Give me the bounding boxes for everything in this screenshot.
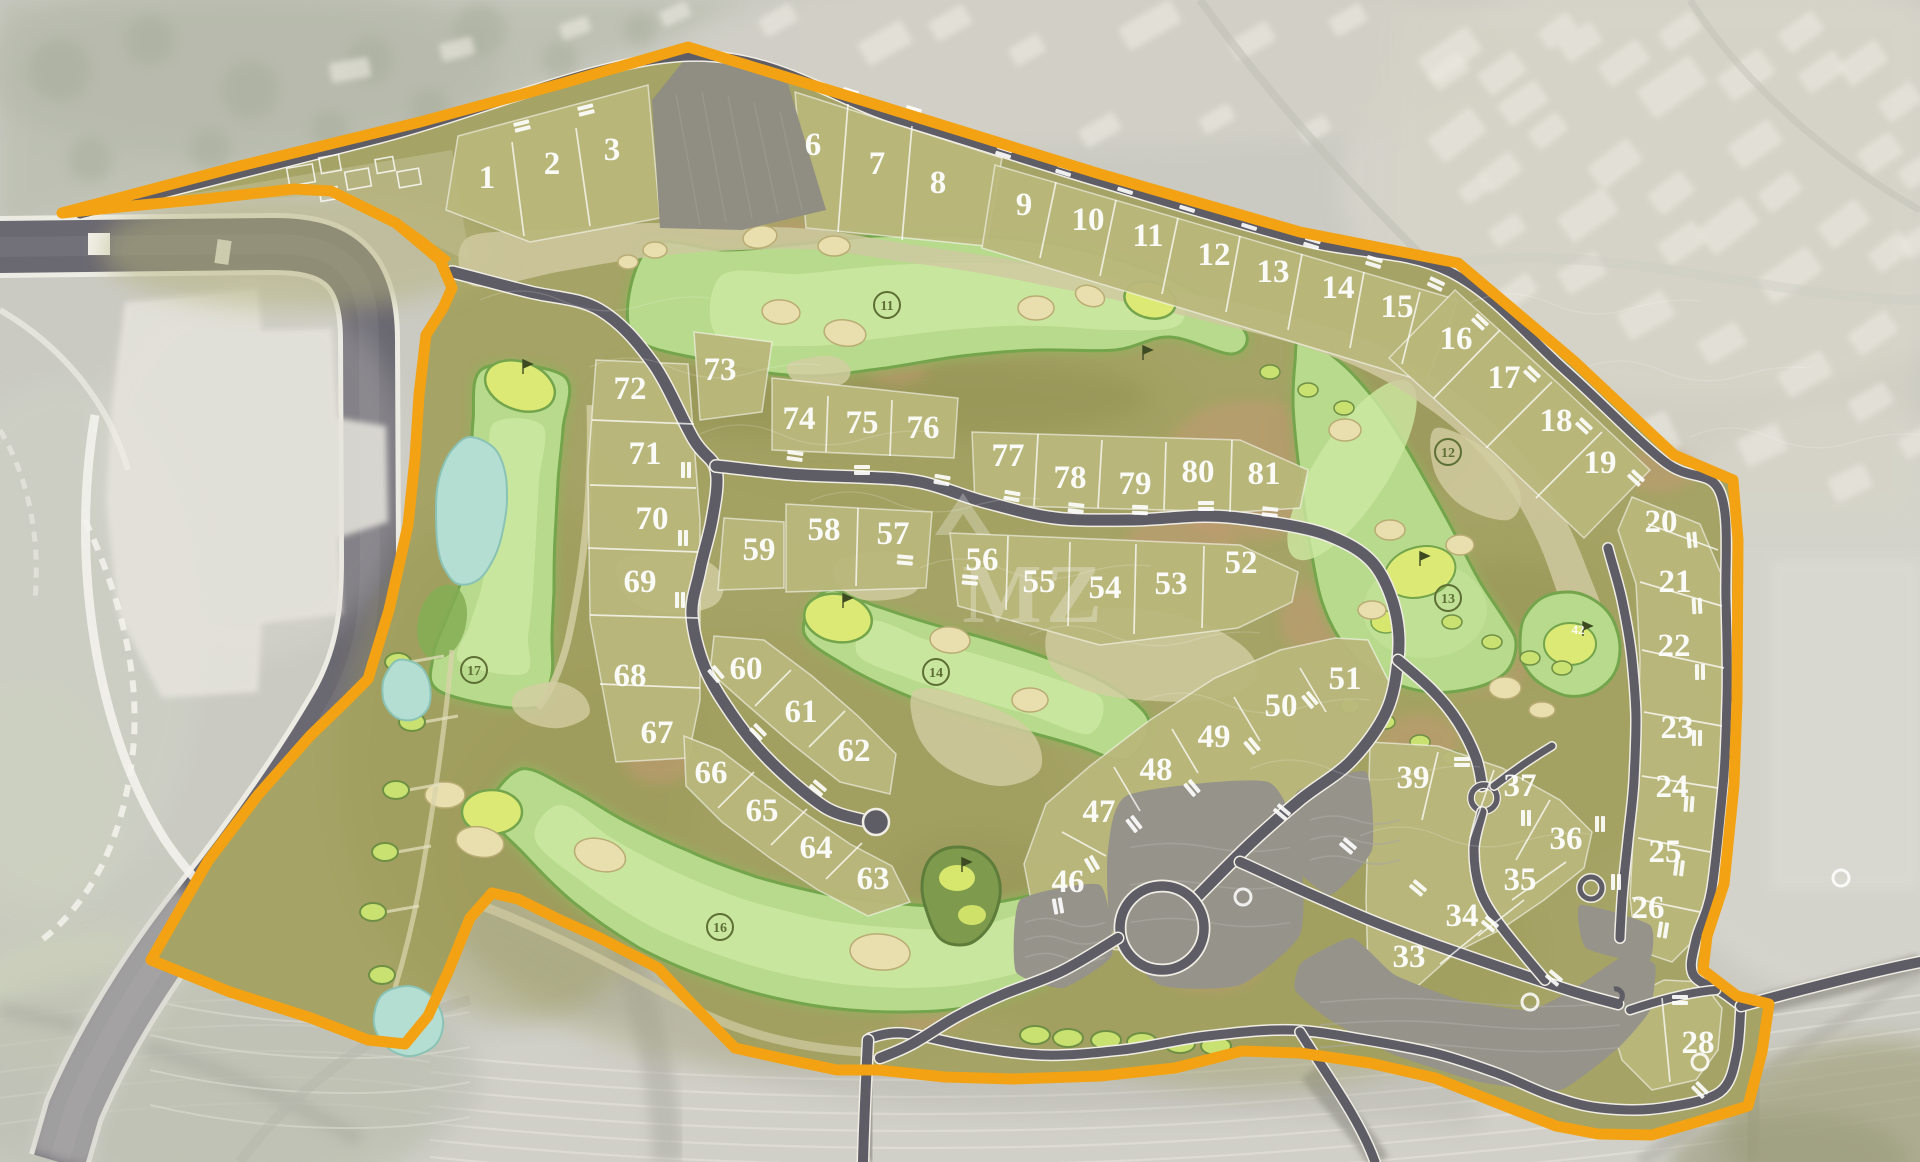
svg-text:24: 24: [1656, 769, 1689, 805]
svg-text:55: 55: [1023, 564, 1056, 600]
svg-text:39: 39: [1397, 760, 1430, 796]
svg-text:11: 11: [880, 299, 893, 314]
svg-text:73: 73: [704, 352, 737, 388]
svg-text:54: 54: [1089, 570, 1122, 606]
svg-text:49: 49: [1198, 719, 1231, 755]
svg-text:13: 13: [1257, 254, 1290, 290]
svg-text:67: 67: [641, 715, 674, 751]
svg-text:57: 57: [877, 516, 910, 552]
svg-text:6: 6: [805, 127, 822, 163]
svg-text:18: 18: [1540, 403, 1573, 439]
svg-text:8: 8: [930, 165, 947, 201]
svg-text:3: 3: [604, 132, 621, 168]
svg-text:51: 51: [1329, 661, 1362, 697]
svg-text:65: 65: [746, 793, 779, 829]
svg-text:33: 33: [1393, 939, 1426, 975]
svg-text:1: 1: [479, 160, 496, 196]
svg-text:77: 77: [992, 438, 1025, 474]
svg-text:72: 72: [614, 371, 647, 407]
svg-text:71: 71: [629, 436, 662, 472]
svg-text:20: 20: [1645, 504, 1678, 540]
svg-text:60: 60: [730, 651, 763, 687]
svg-text:16: 16: [713, 921, 727, 936]
svg-text:80: 80: [1182, 454, 1215, 490]
svg-text:35: 35: [1504, 862, 1537, 898]
svg-text:25: 25: [1649, 834, 1682, 870]
svg-text:23: 23: [1661, 710, 1694, 746]
svg-text:36: 36: [1550, 821, 1583, 857]
svg-text:63: 63: [857, 861, 890, 897]
svg-text:52: 52: [1225, 545, 1258, 581]
svg-text:21: 21: [1659, 564, 1692, 600]
svg-text:46: 46: [1052, 864, 1085, 900]
svg-text:70: 70: [636, 501, 669, 537]
svg-text:9: 9: [1016, 187, 1033, 223]
svg-text:74: 74: [783, 401, 816, 437]
svg-text:42: 42: [1572, 622, 1585, 637]
svg-text:68: 68: [614, 658, 647, 694]
svg-text:15: 15: [1381, 289, 1414, 325]
svg-text:59: 59: [743, 532, 776, 568]
svg-text:16: 16: [1440, 321, 1473, 357]
svg-text:2: 2: [544, 146, 561, 182]
svg-text:47: 47: [1083, 794, 1116, 830]
svg-text:10: 10: [1072, 202, 1105, 238]
svg-text:81: 81: [1248, 456, 1281, 492]
svg-text:22: 22: [1658, 628, 1691, 664]
svg-text:79: 79: [1119, 466, 1152, 502]
svg-text:17: 17: [1488, 360, 1521, 396]
svg-text:13: 13: [1441, 592, 1455, 607]
svg-text:69: 69: [624, 564, 657, 600]
svg-text:19: 19: [1584, 445, 1617, 481]
svg-text:28: 28: [1682, 1025, 1715, 1061]
svg-text:14: 14: [929, 666, 943, 681]
svg-text:17: 17: [467, 664, 481, 679]
svg-text:34: 34: [1446, 898, 1479, 934]
svg-text:61: 61: [785, 694, 818, 730]
svg-text:50: 50: [1265, 688, 1298, 724]
svg-text:37: 37: [1504, 768, 1537, 804]
svg-text:66: 66: [695, 755, 728, 791]
svg-text:48: 48: [1140, 752, 1173, 788]
svg-text:75: 75: [846, 405, 879, 441]
svg-text:53: 53: [1155, 566, 1188, 602]
svg-text:12: 12: [1441, 446, 1455, 461]
svg-text:58: 58: [808, 512, 841, 548]
svg-text:76: 76: [907, 410, 940, 446]
svg-text:12: 12: [1198, 237, 1231, 273]
svg-text:56: 56: [966, 542, 999, 578]
svg-text:14: 14: [1322, 270, 1355, 306]
svg-text:64: 64: [800, 830, 833, 866]
svg-text:26: 26: [1632, 890, 1665, 926]
svg-text:7: 7: [869, 146, 886, 182]
svg-text:11: 11: [1132, 218, 1163, 254]
svg-text:78: 78: [1054, 460, 1087, 496]
svg-text:62: 62: [838, 733, 871, 769]
